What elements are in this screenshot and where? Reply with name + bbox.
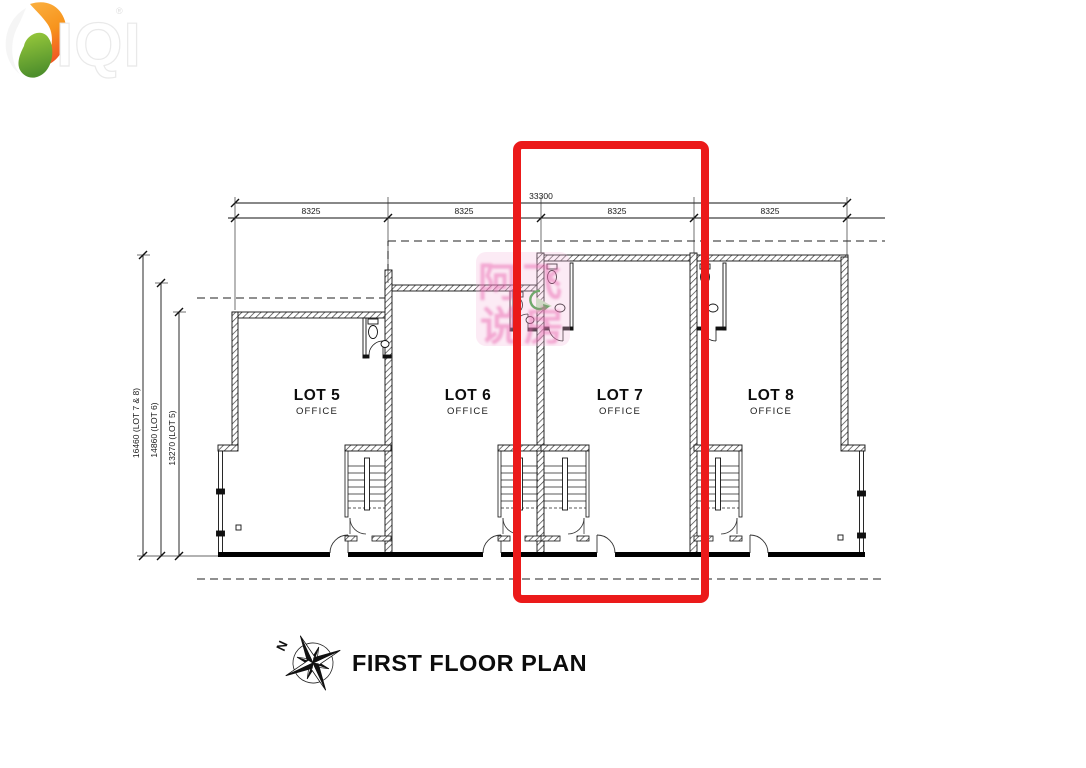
lot6-name: LOT 6 (445, 387, 491, 404)
lot7-use: OFFICE (599, 406, 641, 417)
compass-rose-icon: N (273, 623, 353, 703)
dimension-lines: 33300 8325 8325 8325 8325 16460 (LOT 7 &… (131, 191, 885, 560)
dim-left-lot78: 16460 (LOT 7 & 8) (131, 388, 141, 458)
staircase-lot5 (345, 445, 391, 541)
lot8-name: LOT 8 (748, 387, 794, 404)
lot8-use: OFFICE (750, 406, 792, 417)
dim-segment-1: 8325 (302, 206, 321, 216)
watermark: 阿飞 说房 (476, 252, 570, 349)
lot5-name: LOT 5 (294, 387, 340, 404)
logo-registered-mark: ® (116, 6, 123, 16)
staircase-lot7 (541, 445, 589, 541)
drawing-title: FIRST FLOOR PLAN (352, 650, 587, 676)
dim-left-lot6: 14860 (LOT 6) (149, 402, 159, 457)
compass-north-label: N (273, 638, 291, 653)
dim-segment-3: 8325 (608, 206, 627, 216)
lot5-use: OFFICE (296, 406, 338, 417)
dim-left-lot5: 13270 (LOT 5) (167, 410, 177, 465)
lot7-name: LOT 7 (597, 387, 643, 404)
lot6-use: OFFICE (447, 406, 489, 417)
logo-brand-text: IQI (56, 11, 142, 80)
watermark-line2: 说房 (480, 305, 568, 349)
dim-segment-2: 8325 (455, 206, 474, 216)
company-logo: IQI ® (6, 2, 142, 80)
watermark-line1: 阿飞 (478, 261, 566, 305)
dim-segment-4: 8325 (761, 206, 780, 216)
floor-plan-canvas: IQI ® (0, 0, 1086, 768)
